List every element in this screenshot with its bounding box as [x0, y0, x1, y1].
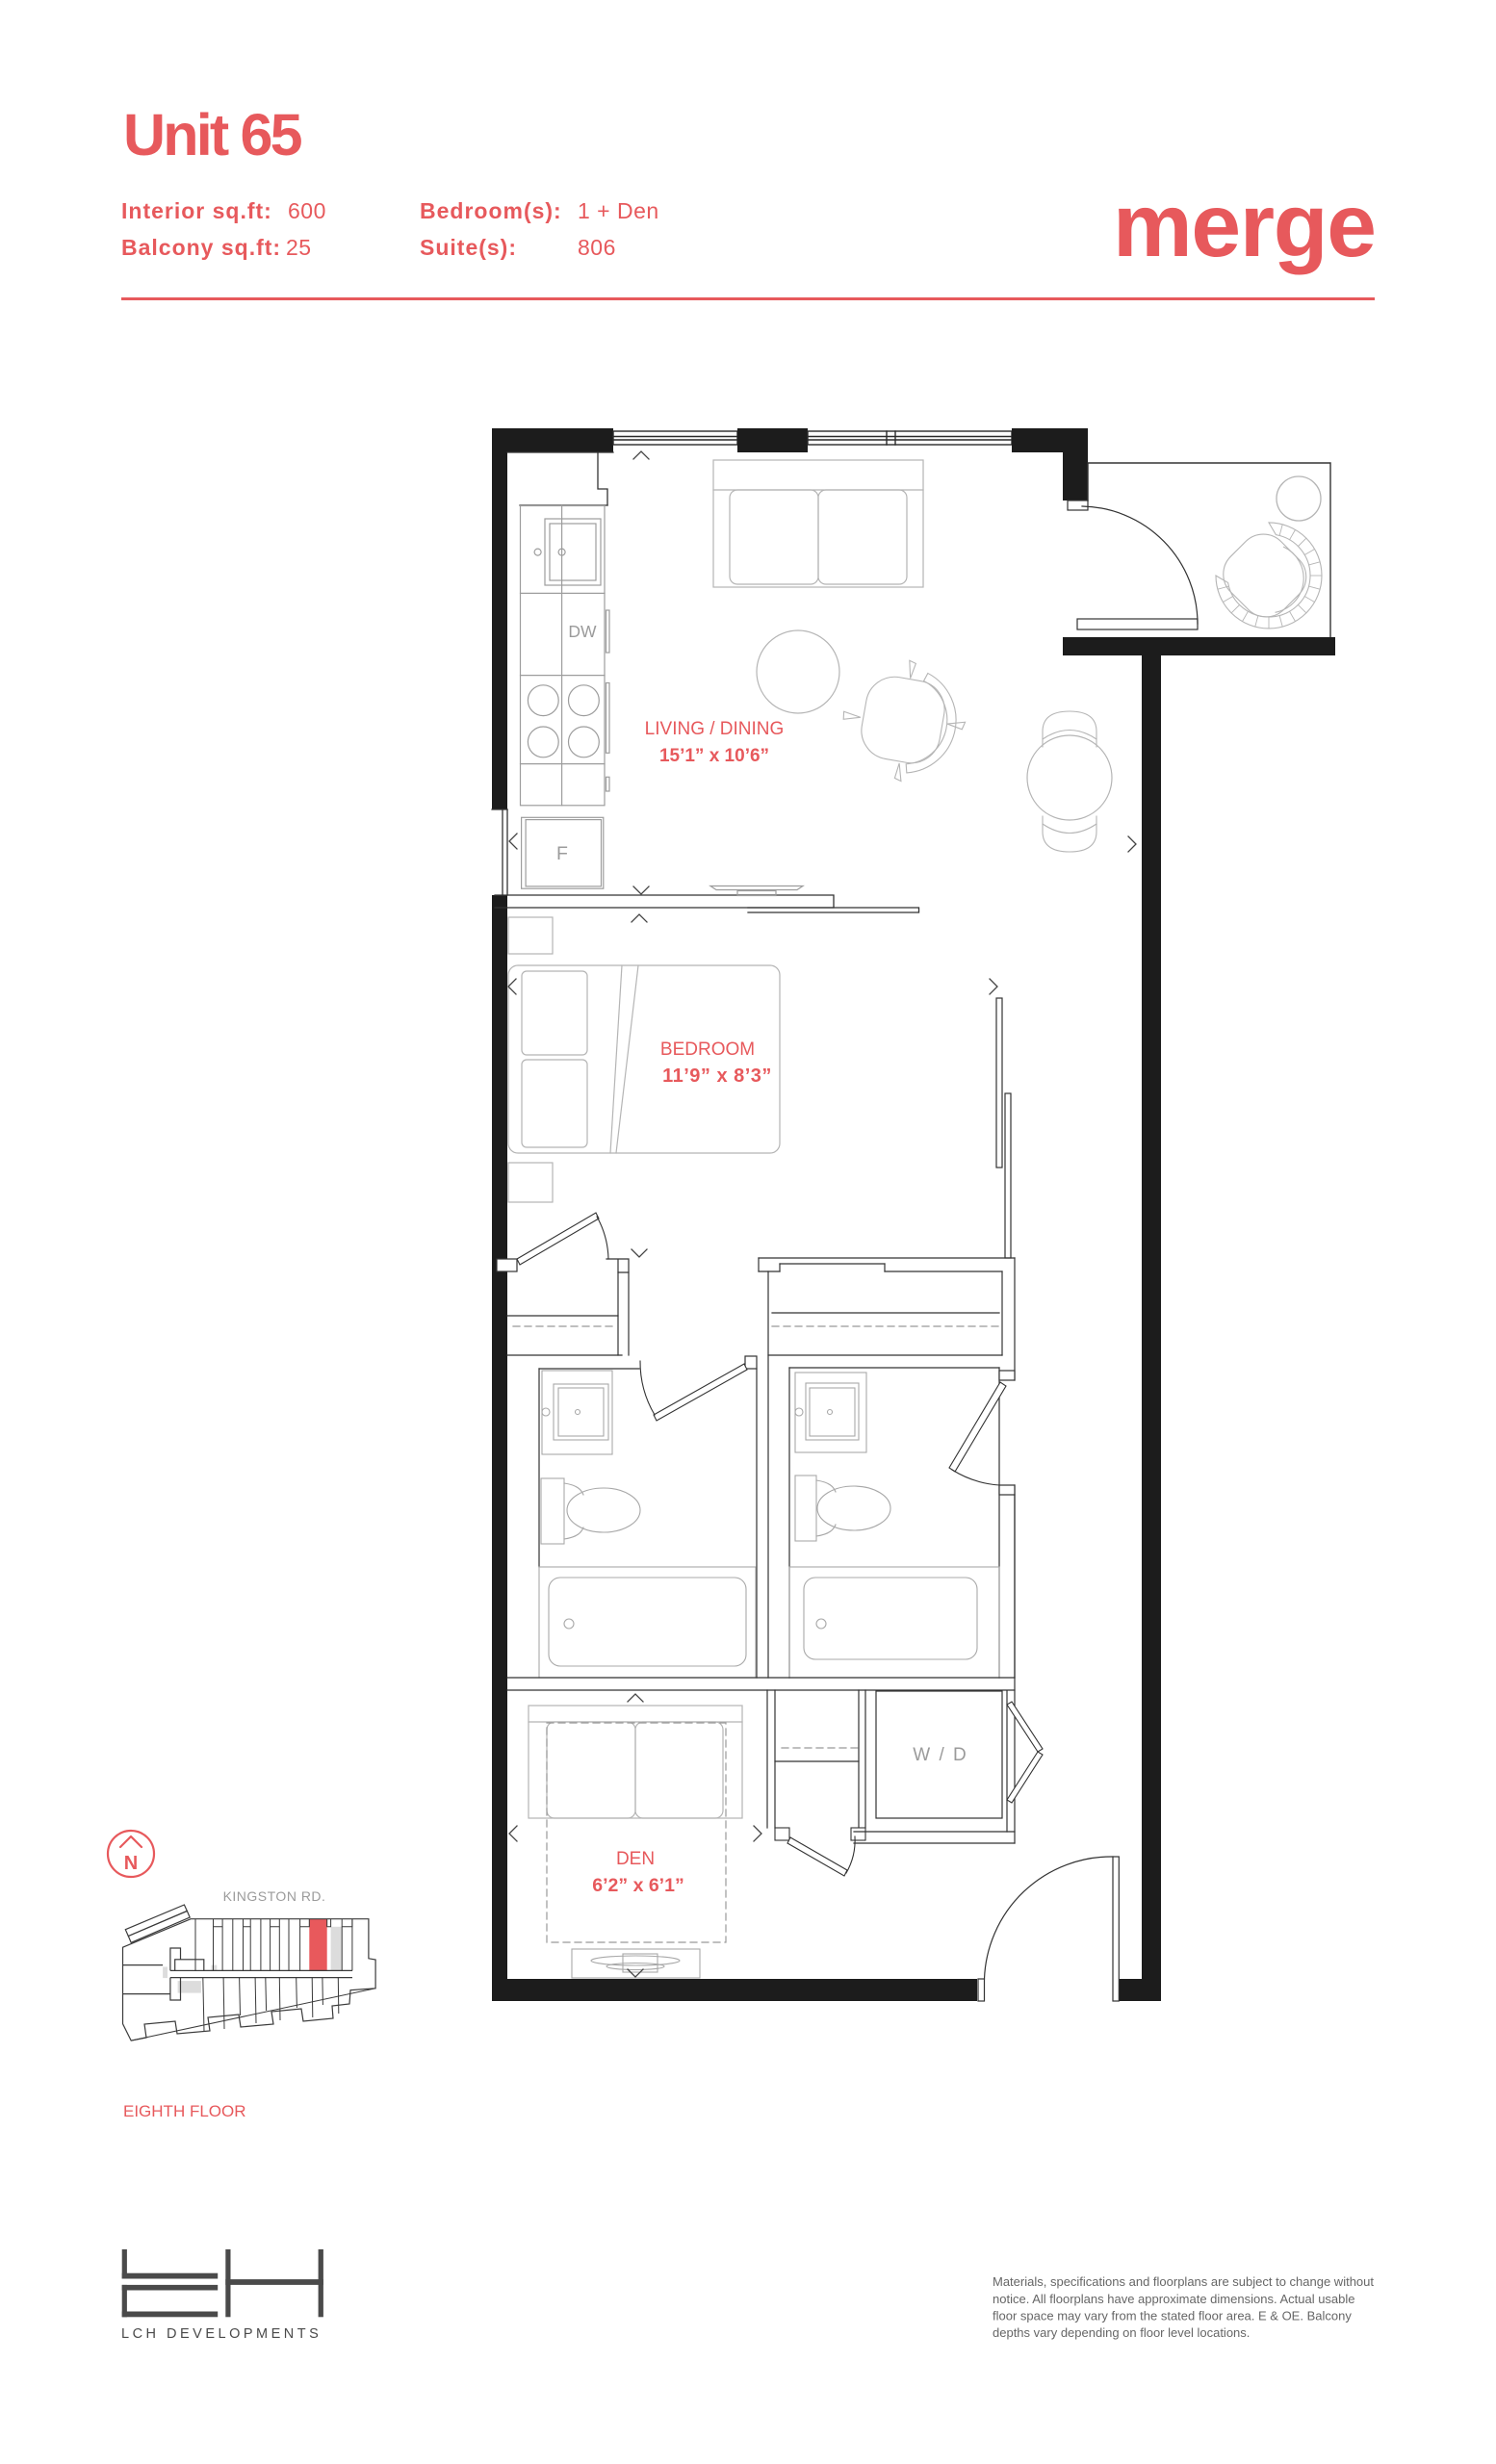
svg-text:Materials, specifications and: Materials, specifications and floorplans… [993, 2274, 1374, 2289]
svg-text:600: 600 [288, 198, 326, 223]
svg-text:806: 806 [578, 235, 616, 260]
svg-text:6’2” x 6’1”: 6’2” x 6’1” [592, 1875, 684, 1896]
svg-text:25: 25 [286, 235, 312, 260]
svg-text:KINGSTON RD.: KINGSTON RD. [223, 1888, 326, 1904]
svg-text:EIGHTH FLOOR: EIGHTH FLOOR [123, 2102, 246, 2120]
svg-text:LIVING / DINING: LIVING / DINING [645, 719, 785, 739]
svg-text:DEN: DEN [616, 1849, 655, 1869]
svg-text:15’1” x 10’6”: 15’1” x 10’6” [659, 746, 769, 766]
svg-text:N: N [124, 1853, 138, 1874]
svg-text:Unit 65: Unit 65 [123, 102, 302, 167]
svg-text:W / D: W / D [913, 1745, 968, 1765]
svg-text:merge: merge [1113, 175, 1376, 275]
svg-text:F: F [556, 843, 568, 864]
svg-text:Interior sq.ft:: Interior sq.ft: [121, 198, 272, 223]
svg-text:floor space may vary from the: floor space may vary from the stated flo… [993, 2309, 1352, 2323]
svg-text:DW: DW [568, 622, 597, 641]
svg-text:depths vary depending on floor: depths vary depending on floor level loc… [993, 2325, 1250, 2340]
svg-text:notice. All floorplans have ap: notice. All floorplans have approximate … [993, 2292, 1355, 2306]
svg-text:11’9” x 8’3”: 11’9” x 8’3” [662, 1065, 772, 1087]
svg-text:Bedroom(s):: Bedroom(s): [420, 198, 562, 223]
svg-text:LCH DEVELOPMENTS: LCH DEVELOPMENTS [121, 2326, 322, 2342]
svg-text:Balcony sq.ft:: Balcony sq.ft: [121, 235, 281, 260]
svg-text:1 + Den: 1 + Den [578, 198, 659, 223]
svg-text:Suite(s):: Suite(s): [420, 235, 517, 260]
svg-text:BEDROOM: BEDROOM [660, 1039, 755, 1060]
